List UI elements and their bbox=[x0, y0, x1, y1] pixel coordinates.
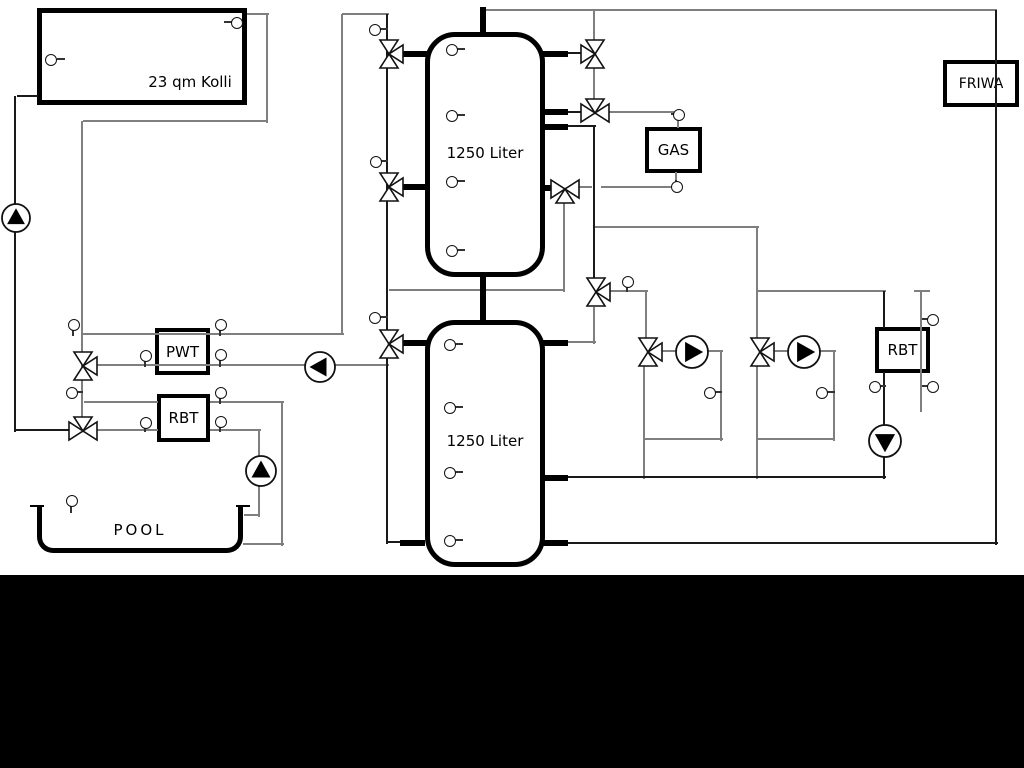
pipe-segment bbox=[281, 402, 283, 546]
temperature-sensor-icon bbox=[446, 245, 458, 257]
temperature-sensor-icon bbox=[140, 417, 152, 429]
pipe-segment bbox=[14, 96, 16, 432]
pipe-segment bbox=[756, 227, 758, 339]
rbt-left-heat-exchanger-box: RBT bbox=[157, 394, 210, 442]
pipe-segment bbox=[83, 120, 268, 122]
temperature-sensor-icon bbox=[673, 109, 685, 121]
sensor-stem bbox=[455, 406, 463, 408]
pipe-segment bbox=[266, 14, 268, 123]
temperature-sensor-icon bbox=[816, 387, 828, 399]
temperature-sensor-icon bbox=[444, 339, 456, 351]
pipe-segment bbox=[386, 357, 388, 544]
pipe-segment bbox=[565, 542, 998, 544]
pipe-stub bbox=[543, 124, 568, 130]
sensor-stem bbox=[715, 391, 722, 393]
pipe-stub bbox=[400, 540, 425, 546]
three-way-valve-icon bbox=[549, 173, 581, 205]
friwa-riser-pipe bbox=[995, 10, 997, 545]
pipe-segment bbox=[483, 9, 997, 11]
three-way-valve-icon bbox=[373, 38, 405, 70]
temperature-sensor-icon bbox=[444, 535, 456, 547]
pipe-stub bbox=[543, 109, 568, 115]
sensor-stem bbox=[455, 343, 463, 345]
temperature-sensor-icon bbox=[231, 17, 243, 29]
pipe-segment bbox=[593, 10, 595, 41]
pool-label: POOL bbox=[37, 521, 243, 539]
sensor-stem bbox=[457, 180, 465, 182]
pipe-segment bbox=[720, 351, 722, 441]
pool-rim-tick bbox=[236, 505, 250, 507]
hydraulic-schematic-canvas: 23 qm Kolli 1250 Liter 1250 Liter PWT RB… bbox=[0, 0, 1024, 768]
pump-left-icon bbox=[302, 349, 338, 385]
temperature-sensor-icon bbox=[215, 319, 227, 331]
pipe-stub bbox=[480, 274, 486, 324]
pwt-heat-exchanger-box: PWT bbox=[155, 328, 210, 375]
temperature-sensor-icon bbox=[370, 156, 382, 168]
pipe-segment bbox=[97, 364, 389, 366]
pipe-stub bbox=[403, 51, 427, 57]
temperature-sensor-icon bbox=[68, 319, 80, 331]
sensor-stem bbox=[70, 506, 72, 513]
temperature-sensor-icon bbox=[215, 416, 227, 428]
three-way-valve-icon bbox=[744, 336, 776, 368]
rbt-right-label: RBT bbox=[888, 341, 918, 359]
pipe-segment bbox=[757, 290, 886, 292]
pipe-stub bbox=[543, 340, 568, 346]
buffer-tank-2-label: 1250 Liter bbox=[425, 432, 545, 450]
pwt-label: PWT bbox=[166, 343, 199, 361]
temperature-sensor-icon bbox=[444, 402, 456, 414]
temperature-sensor-icon bbox=[66, 387, 78, 399]
temperature-sensor-icon bbox=[446, 110, 458, 122]
temperature-sensor-icon bbox=[45, 54, 57, 66]
pipe-segment bbox=[883, 291, 885, 328]
pipe-segment bbox=[601, 186, 671, 188]
pipe-segment bbox=[84, 401, 158, 403]
temperature-sensor-icon bbox=[671, 181, 683, 193]
pipe-stub bbox=[403, 184, 427, 190]
solar-collector-label: 23 qm Kolli bbox=[138, 73, 242, 91]
pipe-segment bbox=[593, 67, 595, 100]
pump-right-icon bbox=[673, 333, 711, 371]
pipe-segment bbox=[243, 543, 284, 545]
temperature-sensor-icon bbox=[215, 349, 227, 361]
pipe-segment bbox=[914, 290, 930, 292]
pipe-segment bbox=[17, 95, 38, 97]
pipe-segment bbox=[593, 307, 595, 344]
pipe-segment bbox=[389, 289, 565, 291]
pipe-stub bbox=[543, 475, 568, 481]
three-way-valve-icon bbox=[373, 328, 405, 360]
sensor-stem bbox=[455, 471, 463, 473]
pipe-stub bbox=[403, 340, 427, 346]
temperature-sensor-icon bbox=[66, 495, 78, 507]
sensor-stem bbox=[380, 316, 388, 318]
temperature-sensor-icon bbox=[444, 467, 456, 479]
pipe-stub bbox=[543, 540, 568, 546]
temperature-sensor-icon bbox=[704, 387, 716, 399]
three-way-valve-icon bbox=[580, 276, 612, 308]
temperature-sensor-icon bbox=[369, 312, 381, 324]
pipe-segment bbox=[645, 438, 723, 440]
friwa-box: FRIWA bbox=[943, 60, 1019, 107]
three-way-valve-icon bbox=[373, 171, 405, 203]
pipe-segment bbox=[833, 351, 835, 441]
pool-rim-tick bbox=[30, 505, 44, 507]
pipe-segment bbox=[565, 341, 596, 343]
pipe-segment bbox=[609, 111, 674, 113]
pipe-segment bbox=[210, 429, 261, 431]
temperature-sensor-icon bbox=[446, 44, 458, 56]
pipe-segment bbox=[595, 226, 759, 228]
sensor-stem bbox=[457, 249, 465, 251]
three-way-valve-icon bbox=[579, 97, 611, 129]
three-way-valve-icon bbox=[579, 38, 611, 70]
sensor-stem bbox=[457, 114, 465, 116]
sensor-stem bbox=[219, 360, 221, 367]
gas-label: GAS bbox=[658, 141, 689, 159]
pipe-segment bbox=[609, 290, 648, 292]
pipe-segment bbox=[645, 291, 647, 339]
gas-boiler-box: GAS bbox=[645, 127, 702, 173]
pipe-stub bbox=[480, 7, 486, 35]
rbt-left-label: RBT bbox=[169, 409, 199, 427]
sensor-stem bbox=[380, 28, 388, 30]
pipe-stub bbox=[543, 51, 568, 57]
sensor-stem bbox=[455, 539, 463, 541]
pump-up-icon bbox=[0, 201, 33, 235]
pipe-segment bbox=[16, 429, 70, 431]
temperature-sensor-icon bbox=[927, 381, 939, 393]
pipe-segment bbox=[757, 438, 835, 440]
pipe-segment bbox=[643, 365, 645, 479]
pipe-segment bbox=[756, 365, 758, 479]
three-way-valve-icon bbox=[67, 350, 99, 382]
pipe-segment bbox=[210, 401, 284, 403]
temperature-sensor-icon bbox=[446, 176, 458, 188]
temperature-sensor-icon bbox=[869, 381, 881, 393]
temperature-sensor-icon bbox=[140, 350, 152, 362]
three-way-valve-icon bbox=[632, 336, 664, 368]
pipe-segment bbox=[341, 14, 343, 335]
pump-down-icon bbox=[866, 422, 904, 460]
pipe-segment bbox=[563, 202, 565, 292]
temperature-sensor-icon bbox=[622, 276, 634, 288]
pipe-segment bbox=[97, 429, 158, 431]
temperature-sensor-icon bbox=[369, 24, 381, 36]
sensor-stem bbox=[457, 48, 465, 50]
temperature-sensor-icon bbox=[215, 387, 227, 399]
sensor-stem bbox=[57, 58, 65, 60]
pipe-segment bbox=[342, 13, 389, 15]
pipe-segment bbox=[920, 291, 922, 412]
pipe-segment bbox=[593, 126, 595, 279]
sensor-stem bbox=[381, 160, 388, 162]
sensor-stem bbox=[827, 391, 835, 393]
three-way-valve-icon bbox=[67, 415, 99, 447]
black-footer-band bbox=[0, 575, 1024, 768]
temperature-sensor-icon bbox=[927, 314, 939, 326]
pipe-segment bbox=[244, 514, 260, 516]
buffer-tank-1-label: 1250 Liter bbox=[425, 144, 545, 162]
pump-right-icon bbox=[785, 333, 823, 371]
pump-up-icon bbox=[243, 453, 279, 489]
pipe-segment bbox=[83, 333, 344, 335]
pipe-segment bbox=[565, 476, 886, 478]
